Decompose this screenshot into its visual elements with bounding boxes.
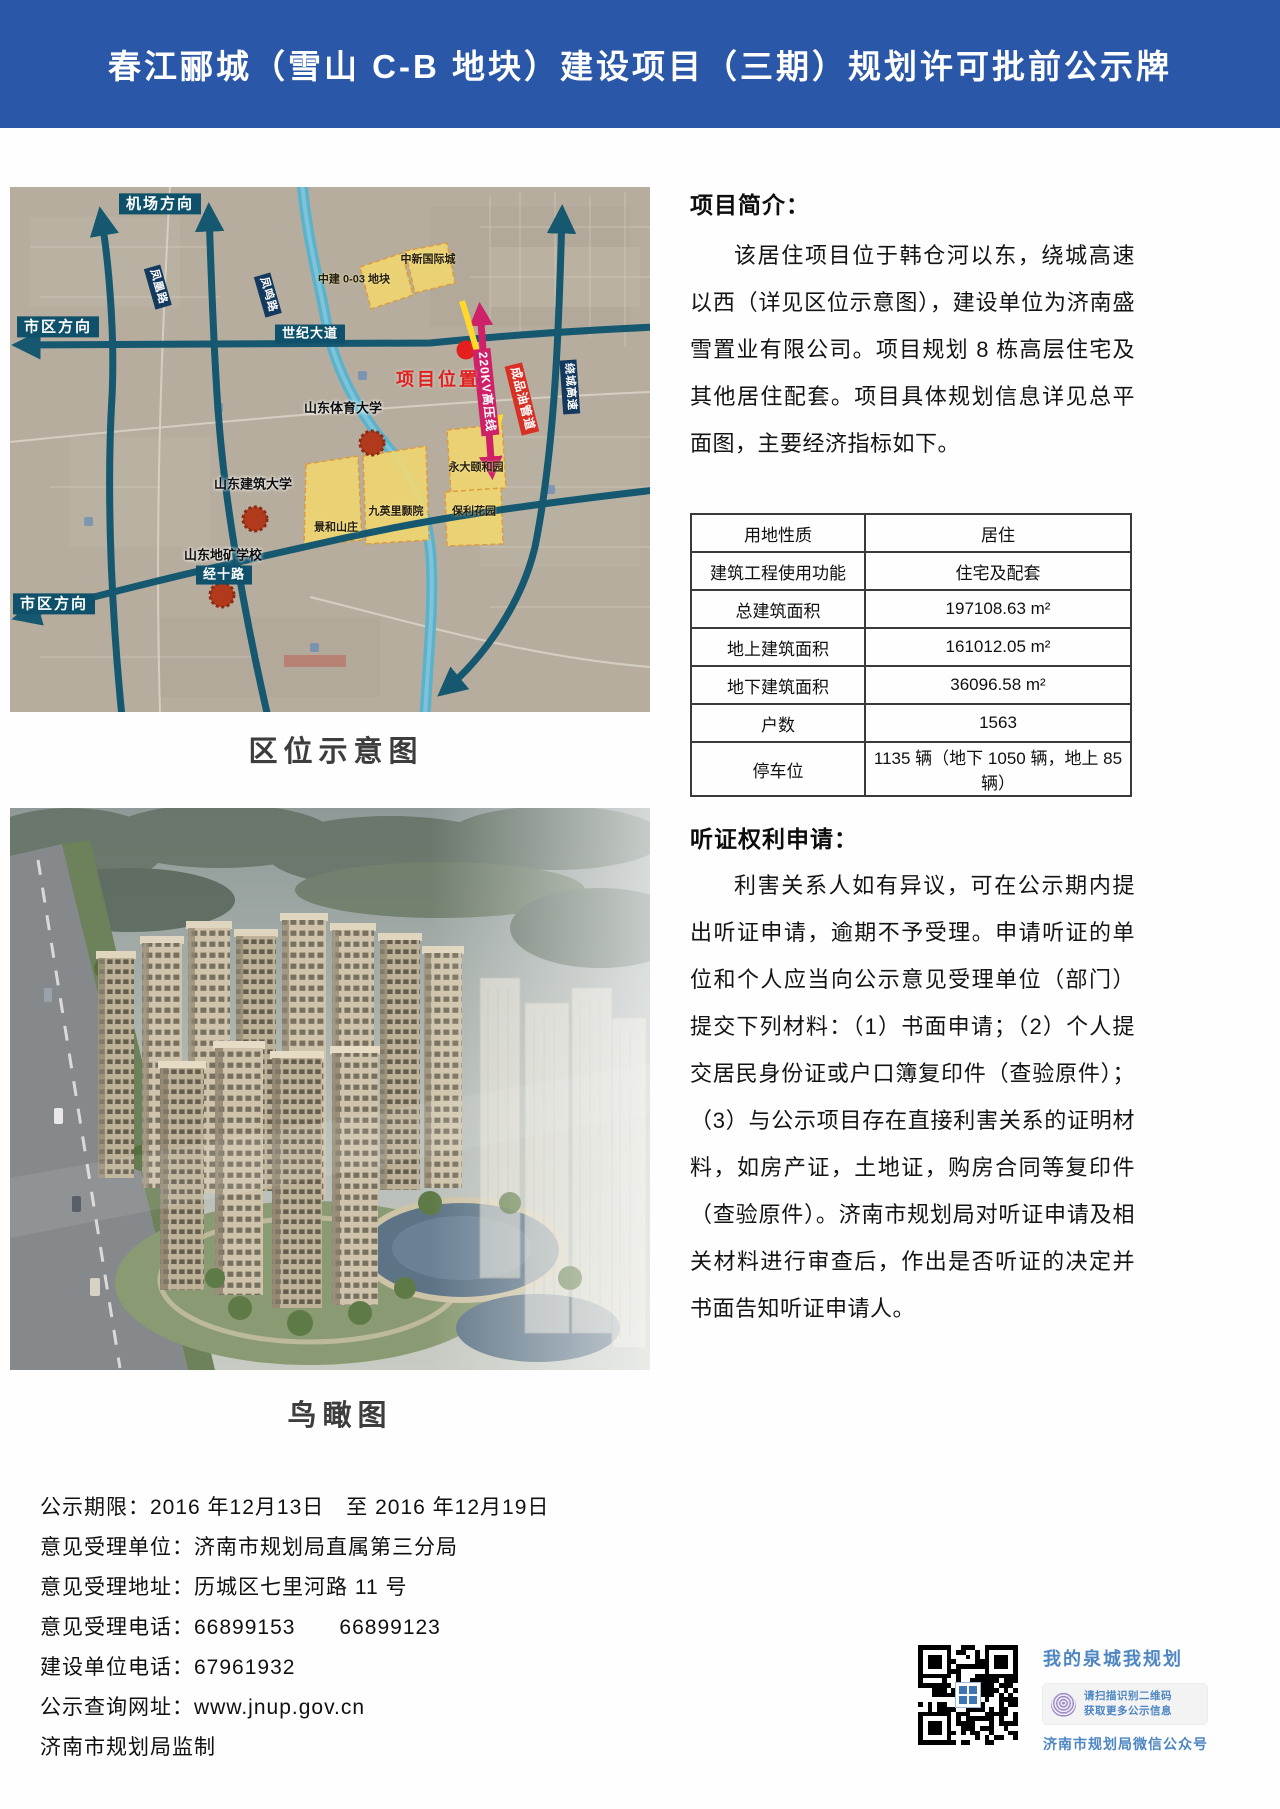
row-value: 1135 辆（地下 1050 辆，地上 85 辆）	[865, 742, 1131, 796]
header-banner: 春江郦城（雪山 C-B 地块）建设项目（三期）规划许可批前公示牌	[0, 0, 1280, 128]
map-label-univ-jianzhu: 山东建筑大学	[214, 478, 292, 493]
map-label-parcel-jiuyingli: 九英里颢院	[369, 506, 424, 519]
row-value: 197108.63 m²	[865, 590, 1131, 628]
row-label: 停车位	[691, 742, 865, 796]
wechat-account-name: 济南市规划局微信公众号	[1043, 1734, 1253, 1754]
location-map: 机场方向 市区方向 市区方向 凤凰路 凤鸣路 世纪大道 经十路 绕城高速 220…	[10, 187, 650, 712]
map-caption: 区位示意图	[248, 728, 423, 770]
table-row: 用地性质居住	[691, 514, 1131, 552]
row-label: 地上建筑面积	[691, 628, 865, 666]
intro-paragraph: 该居住项目位于韩仓河以东，绕城高速以西（详见区位示意图），建设单位为济南盛雪置业…	[690, 232, 1135, 467]
table-row: 地下建筑面积36096.58 m²	[691, 666, 1131, 704]
publicity-period: 公示期限：2016 年12月13日 至 2016 年12月19日	[40, 1488, 549, 1528]
qr-slogan: 我的泉城我规划	[1043, 1645, 1253, 1671]
qr-side-text: 我的泉城我规划 请扫描识别二维码 获取更多公示信息 济南市规划局微信公众号	[1043, 1645, 1253, 1754]
row-value: 1563	[865, 704, 1131, 742]
map-label-jingshi-road: 经十路	[196, 566, 252, 585]
table-row: 建筑工程使用功能住宅及配套	[691, 552, 1131, 590]
scan-badge-line2: 获取更多公示信息	[1084, 1705, 1172, 1717]
map-label-univ-sport: 山东体育大学	[304, 402, 382, 417]
map-label-city-direction: 市区方向	[17, 316, 99, 337]
row-value: 居住	[865, 514, 1131, 552]
row-label: 总建筑面积	[691, 590, 865, 628]
row-label: 用地性质	[691, 514, 865, 552]
row-label: 地下建筑面积	[691, 666, 865, 704]
table-row: 总建筑面积197108.63 m²	[691, 590, 1131, 628]
opinion-phone: 意见受理电话：66899153 66899123	[40, 1608, 549, 1648]
map-label-parcel-zhongjian: 中建 0-03 地块	[318, 274, 390, 287]
hearing-heading: 听证权利申请：	[690, 820, 858, 854]
opinion-unit: 意见受理单位：济南市规划局直属第三分局	[40, 1528, 549, 1568]
map-label-parcel-jinghe: 景和山庄	[314, 522, 358, 535]
notice-board: 春江郦城（雪山 C-B 地块）建设项目（三期）规划许可批前公示牌	[0, 0, 1280, 1809]
aerial-rendering-image	[10, 808, 650, 1370]
builder-phone: 建设单位电话：67961932	[40, 1648, 549, 1688]
row-value: 36096.58 m²	[865, 666, 1131, 704]
aerial-caption: 鸟瞰图	[287, 1392, 392, 1434]
row-value: 住宅及配套	[865, 552, 1131, 590]
qr-center-logo-icon	[955, 1682, 981, 1708]
scan-badge-line1: 请扫描识别二维码	[1084, 1690, 1172, 1702]
scan-badge: 请扫描识别二维码 获取更多公示信息	[1043, 1684, 1207, 1724]
map-label-parcel-baoli: 保利花园	[452, 506, 496, 519]
map-label-city-direction-2: 市区方向	[13, 593, 95, 614]
aerial-view	[10, 808, 650, 1370]
opinion-address: 意见受理地址：历城区七里河路 11 号	[40, 1568, 549, 1608]
scan-badge-text: 请扫描识别二维码 获取更多公示信息	[1084, 1689, 1172, 1719]
hearing-paragraph: 利害关系人如有异议，可在公示期内提出听证申请，逾期不予受理。申请听证的单位和个人…	[690, 862, 1135, 1332]
row-value: 161012.05 m²	[865, 628, 1131, 666]
publicity-website: 公示查询网址：www.jnup.gov.cn	[40, 1688, 549, 1728]
map-image	[10, 187, 650, 712]
row-label: 户数	[691, 704, 865, 742]
intro-heading: 项目简介：	[690, 186, 810, 220]
page-title: 春江郦城（雪山 C-B 地块）建设项目（三期）规划许可批前公示牌	[108, 40, 1172, 88]
table-row: 户数1563	[691, 704, 1131, 742]
fingerprint-icon	[1051, 1692, 1076, 1717]
map-label-century-avenue: 世纪大道	[275, 325, 345, 344]
map-label-parcel-zhongxin: 中新国际城	[401, 254, 456, 267]
map-label-project-location: 项目位置	[396, 370, 480, 391]
row-label: 建筑工程使用功能	[691, 552, 865, 590]
table-row: 停车位1135 辆（地下 1050 辆，地上 85 辆）	[691, 742, 1131, 796]
supervising-authority: 济南市规划局监制	[40, 1728, 549, 1768]
footer-info: 公示期限：2016 年12月13日 至 2016 年12月19日 意见受理单位：…	[40, 1488, 549, 1768]
map-label-airport-direction: 机场方向	[119, 193, 201, 214]
map-label-school-dikuang: 山东地矿学校	[184, 549, 262, 564]
table-row: 地上建筑面积161012.05 m²	[691, 628, 1131, 666]
economic-indicators-table: 用地性质居住 建筑工程使用功能住宅及配套 总建筑面积197108.63 m² 地…	[690, 513, 1132, 797]
map-label-parcel-yongda: 永大颐和园	[449, 462, 504, 475]
